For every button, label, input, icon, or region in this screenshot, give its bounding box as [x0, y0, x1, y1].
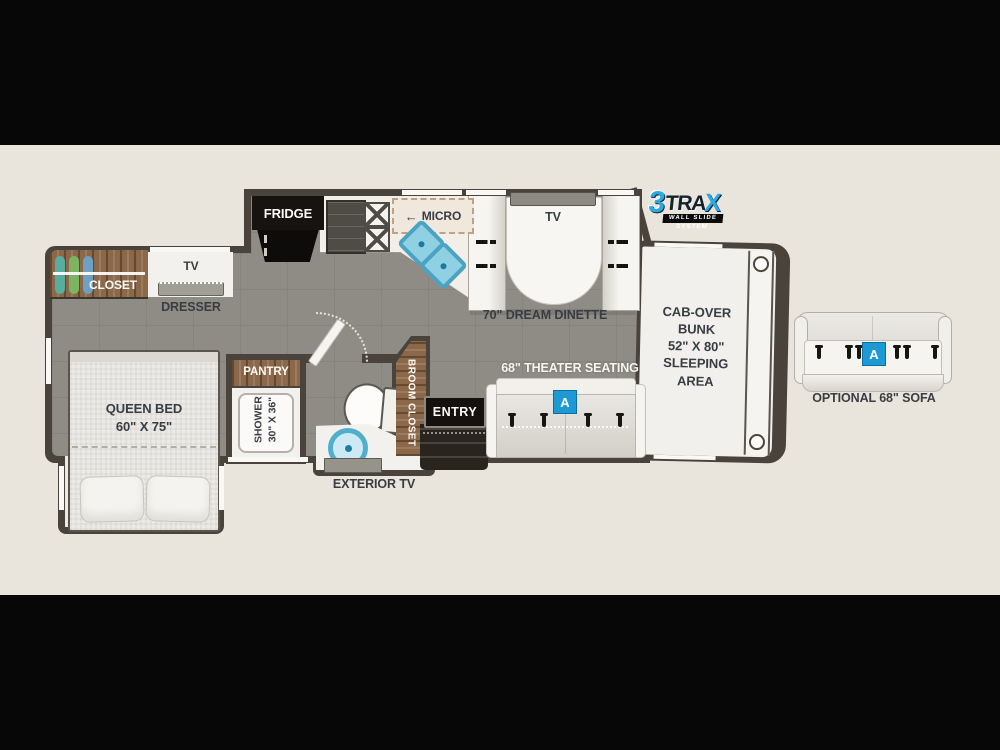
- seatbelt-pin: [542, 414, 546, 427]
- fridge-sign: FRIDGE: [252, 196, 324, 230]
- logo-tra: TRA: [664, 192, 707, 216]
- theater-seating-label: 68" THEATER SEATING: [492, 361, 648, 375]
- fridge-body: [256, 230, 320, 262]
- exterior-tv-icon: [324, 458, 382, 473]
- seatbelt-pin: [510, 414, 514, 427]
- microwave-overhead: ← MICRO: [392, 198, 474, 234]
- dinette-tv-icon: [510, 192, 596, 206]
- cab-front-strip: [744, 251, 775, 456]
- micro-label: MICRO: [422, 209, 462, 223]
- micro-arrow-icon: ←: [405, 209, 418, 224]
- closet-rod: [53, 272, 145, 275]
- logo-tagline: WALL SLIDE SYSTEM: [662, 214, 723, 223]
- seatbelt-pin: [847, 346, 851, 359]
- window: [219, 466, 224, 510]
- dream-dinette-label: 70" DREAM DINETTE: [468, 308, 622, 322]
- seatbelt-pin: [857, 346, 861, 359]
- entry-steps: [420, 424, 488, 470]
- cab-speaker-icon: [753, 256, 769, 272]
- optional-sofa-label: OPTIONAL 68" SOFA: [796, 391, 952, 405]
- seatbelt-pin: [817, 346, 821, 359]
- window: [46, 338, 51, 384]
- queen-bed-label: QUEEN BED 60" X 75": [70, 400, 218, 435]
- broom-closet-label: BROOM CLOSET: [398, 352, 424, 454]
- cab-over-section: CAB-OVER BUNK 52" X 80" SLEEPING AREA: [634, 240, 791, 463]
- bed-headboard-edge: [70, 352, 218, 362]
- entry-sign: ENTRY: [424, 396, 486, 428]
- burner-icon: [364, 227, 390, 252]
- bedroom-tv-label: TV: [160, 259, 222, 273]
- seatbelt-icon: [476, 240, 496, 244]
- bed-pillow: [145, 475, 210, 523]
- sofa-skirt: [802, 374, 944, 392]
- shower-label: SHOWER 30" X 36": [252, 390, 279, 450]
- stove-burners: [364, 200, 390, 250]
- bed-fold-line: [72, 446, 216, 448]
- seatbelt-pin: [905, 346, 909, 359]
- seatbelt-pin: [933, 346, 937, 359]
- shower: SHOWER 30" X 36": [232, 388, 300, 458]
- fridge-label: FRIDGE: [264, 206, 313, 221]
- seatbelt-icon: [476, 264, 496, 268]
- window: [150, 247, 230, 252]
- dinette-tv-label: TV: [538, 210, 568, 224]
- seatbelt-icon: [608, 240, 628, 244]
- screenshot-root: { "logo": { "num": "3", "mid": "TRA", "x…: [0, 0, 1000, 750]
- entry-threshold-dots: [423, 432, 485, 434]
- window: [598, 190, 634, 195]
- closet-label: CLOSET: [80, 278, 146, 292]
- stove: [326, 200, 366, 254]
- pantry-label: PANTRY: [232, 366, 300, 378]
- fridge-handle: [264, 248, 267, 256]
- cab-window: [654, 455, 716, 460]
- seatbelt-pin: [618, 414, 622, 427]
- bed-pillow: [79, 475, 144, 523]
- cab-speaker-icon: [749, 434, 765, 450]
- dresser-label: DRESSER: [146, 300, 236, 314]
- sofa-option-badge: A: [862, 342, 886, 366]
- window: [466, 190, 506, 195]
- dinette-bench-right: [602, 196, 640, 311]
- theater-seat-dotted-line: [502, 426, 628, 428]
- hanger-icon: [55, 256, 65, 294]
- cab-over-bunk-label: CAB-OVER BUNK 52" X 80" SLEEPING AREA: [643, 302, 749, 390]
- hanger-icon: [69, 256, 79, 294]
- burner-icon: [364, 202, 390, 227]
- exterior-tv-label: EXTERIOR TV: [300, 477, 448, 491]
- bath-sink-drain: [345, 445, 352, 452]
- window: [228, 457, 308, 462]
- entry-label: ENTRY: [433, 405, 477, 419]
- seatbelt-icon: [608, 264, 628, 268]
- window: [402, 190, 462, 195]
- theater-option-badge: A: [553, 390, 577, 414]
- seatbelt-pin: [895, 346, 899, 359]
- fridge-handle: [264, 235, 267, 243]
- window: [59, 466, 64, 510]
- 3trax-logo: 3 TRA X WALL SLIDE SYSTEM: [646, 190, 734, 226]
- bedroom-tv-icon: [158, 282, 224, 296]
- seatbelt-pin: [586, 414, 590, 427]
- queen-bed: QUEEN BED 60" X 75": [68, 350, 220, 532]
